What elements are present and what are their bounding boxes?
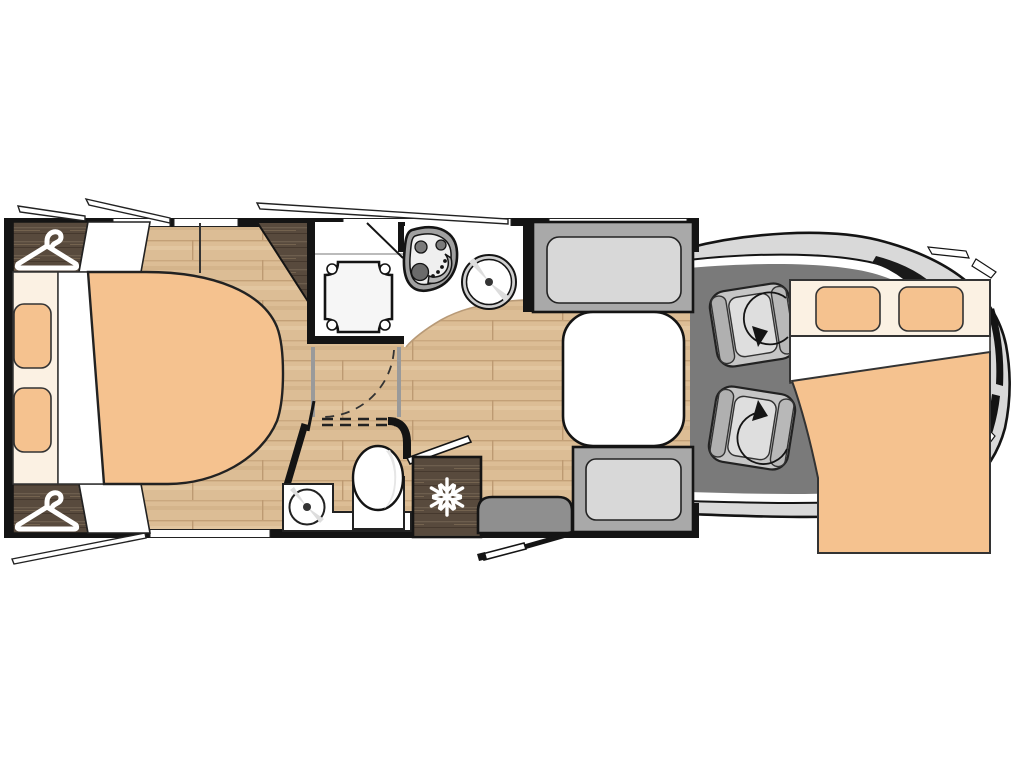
wall-left — [4, 218, 13, 538]
hob-grill-dot — [443, 259, 447, 263]
shower-tray-corner — [327, 264, 337, 274]
pillow-front-2 — [899, 287, 963, 331]
bench-rear-cushion — [586, 459, 681, 520]
hob-burner-small-2 — [436, 240, 446, 250]
sink-drain — [485, 278, 493, 286]
roof-sliver-2 — [972, 259, 996, 278]
entrance — [477, 497, 573, 561]
washbasin-drain — [303, 503, 311, 511]
shower-tray-corner — [380, 264, 390, 274]
bench-front-cushion — [547, 237, 681, 303]
cabinet-bottom-white — [79, 484, 150, 533]
swivel-seat-1 — [708, 281, 799, 369]
drop-down-bed — [790, 280, 990, 553]
pillow-rear-2 — [14, 388, 51, 452]
hob-burner-small-1 — [415, 241, 427, 253]
wall-kitchen-right — [523, 218, 533, 312]
floorplan-canvas — [0, 0, 1024, 768]
hob-grill-dot — [436, 270, 440, 274]
hob-burner-large — [412, 264, 429, 281]
entry-door-open — [482, 543, 526, 560]
front-bed-duvet — [792, 352, 990, 553]
shower-tray-corner — [327, 320, 337, 330]
entry-step — [478, 497, 572, 533]
motorhome-floorplan — [0, 0, 1024, 768]
pillow-front-1 — [816, 287, 880, 331]
dinette-table — [563, 312, 684, 446]
cabinet-top-white — [79, 222, 150, 272]
hob-grill-dot — [431, 274, 435, 278]
swivel-seat-2 — [707, 384, 798, 472]
wall-shower-left — [307, 222, 315, 344]
wall-shower-bottom — [307, 336, 407, 344]
roof-sliver-1 — [928, 247, 969, 258]
pillow-rear-1 — [14, 304, 51, 368]
shower-tray-corner — [380, 320, 390, 330]
window-top-2 — [174, 219, 238, 227]
island-bed — [88, 272, 283, 484]
window-bottom-1 — [150, 530, 270, 538]
hob-grill-dot — [440, 265, 444, 269]
